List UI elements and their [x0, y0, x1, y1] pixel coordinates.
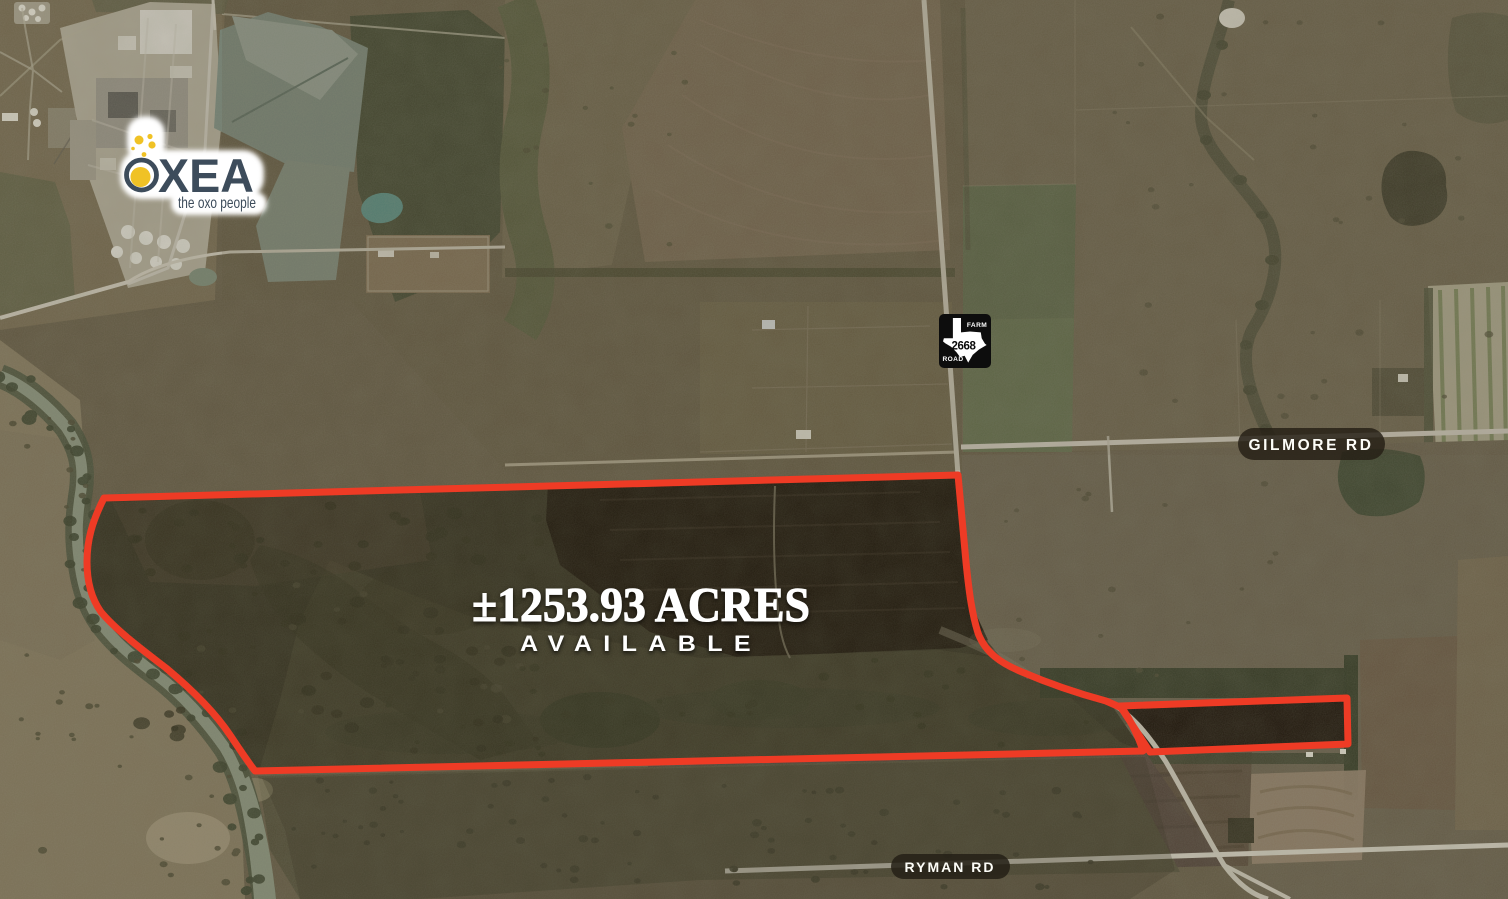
- svg-text:ROAD: ROAD: [942, 356, 963, 363]
- svg-text:2668: 2668: [952, 341, 977, 353]
- svg-text:FARM: FARM: [967, 322, 987, 329]
- svg-text:AVAILABLE: AVAILABLE: [520, 631, 762, 656]
- svg-text:RYMAN RD: RYMAN RD: [905, 859, 996, 875]
- svg-text:the oxo people: the oxo people: [178, 195, 256, 212]
- svg-text:±1253.93 ACRES: ±1253.93 ACRES: [472, 577, 810, 632]
- svg-text:GILMORE RD: GILMORE RD: [1248, 437, 1373, 454]
